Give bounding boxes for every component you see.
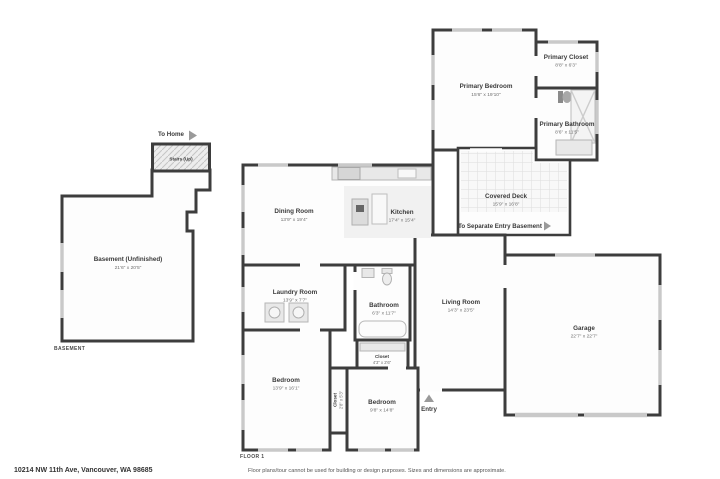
basement-level-label: BASEMENT [54, 346, 85, 352]
to-separate-entry-link[interactable]: To Separate Entry Basement [458, 222, 551, 231]
bathtub-icon [359, 321, 406, 337]
room-bedroom-right-name: Bedroom [368, 399, 396, 406]
room-primary-bedroom [433, 30, 536, 150]
to-home-link[interactable]: To Home [158, 131, 197, 141]
room-basement-dims: 21'6" x 20'5" [115, 265, 142, 271]
toilet-icon [383, 273, 392, 285]
room-closet-hall-dims: 4'3" x 2'6" [373, 360, 392, 365]
room-closet-bedroom-dims: 2'8" x 5'3" [339, 390, 344, 409]
basement-section: To Home Stairs (Up) Basement (Unfinished… [54, 131, 210, 353]
room-basement-name: Basement (Unfinished) [94, 256, 163, 263]
to-home-arrow-icon[interactable] [189, 131, 197, 141]
stairs-label: Stairs (Up) [169, 157, 193, 162]
sink-icon [362, 269, 374, 278]
to-separate-entry-label[interactable]: To Separate Entry Basement [458, 223, 542, 230]
room-primary-bedroom-dims: 15'6" x 19'10" [471, 92, 501, 98]
room-closet-bedroom-labels: Closet 2'8" x 5'3" [333, 390, 344, 409]
room-closet-bedroom-name: Closet [333, 393, 338, 408]
floor1-section: Dining Room 13'9" x 19'4" Kitchen 17'4" … [240, 30, 660, 460]
floorplan-page: To Home Stairs (Up) Basement (Unfinished… [0, 0, 720, 479]
to-home-label[interactable]: To Home [158, 131, 185, 138]
room-laundry-name: Laundry Room [273, 289, 318, 296]
room-living-dims: 14'3" x 23'5" [448, 308, 475, 314]
island-sink-icon [356, 205, 364, 212]
room-primary-closet-dims: 8'8" x 6'3" [555, 63, 577, 69]
dryer-drum-icon [293, 307, 304, 318]
room-bedroom-right-dims: 9'8" x 14'8" [370, 408, 394, 414]
room-bathroom-name: Bathroom [369, 302, 399, 309]
room-living-name: Living Room [442, 299, 481, 306]
entry-label: Entry [421, 406, 437, 413]
room-laundry-dims: 13'9" x 7'7" [283, 298, 307, 304]
room-dining-name: Dining Room [274, 208, 314, 215]
washer-drum-icon [269, 307, 280, 318]
room-primary-bedroom-name: Primary Bedroom [460, 83, 513, 90]
room-garage-dims: 22'7" x 22'7" [571, 334, 598, 340]
room-bedroom-left-dims: 13'9" x 16'1" [273, 386, 300, 392]
room-primary-closet-name: Primary Closet [544, 54, 589, 61]
room-covered-deck-dims: 15'9" x 16'8" [493, 202, 520, 208]
toilet-icon [563, 91, 572, 103]
room-closet-hall-name: Closet [375, 354, 390, 359]
toilet-tank-icon [558, 91, 563, 103]
room-kitchen-dims: 17'4" x 15'4" [389, 218, 416, 224]
entry-arrow-icon [424, 395, 434, 403]
room-kitchen-name: Kitchen [390, 209, 413, 216]
entry-marker: Entry [421, 395, 437, 414]
room-primary-bathroom-dims: 8'6" x 11'5" [555, 130, 579, 136]
room-bedroom-left-name: Bedroom [272, 377, 300, 384]
vanity-icon [556, 140, 592, 155]
kitchen-counter [372, 194, 387, 224]
room-garage-name: Garage [573, 325, 595, 332]
room-primary-bathroom-name: Primary Bathroom [540, 121, 595, 128]
floor1-level-label: FLOOR 1 [240, 454, 264, 460]
floorplan-svg: To Home Stairs (Up) Basement (Unfinished… [0, 0, 720, 479]
closet-shelf [360, 343, 405, 351]
room-bathroom-dims: 6'3" x 11'7" [372, 311, 396, 317]
room-dining-dims: 13'9" x 19'4" [281, 217, 308, 223]
property-address: 10214 NW 11th Ave, Vancouver, WA 98685 [14, 467, 153, 474]
stove-icon [338, 168, 360, 180]
room-covered-deck-name: Covered Deck [485, 193, 527, 200]
sink-icon [398, 169, 416, 178]
disclaimer-text: Floor plans/tour cannot be used for buil… [248, 468, 506, 474]
